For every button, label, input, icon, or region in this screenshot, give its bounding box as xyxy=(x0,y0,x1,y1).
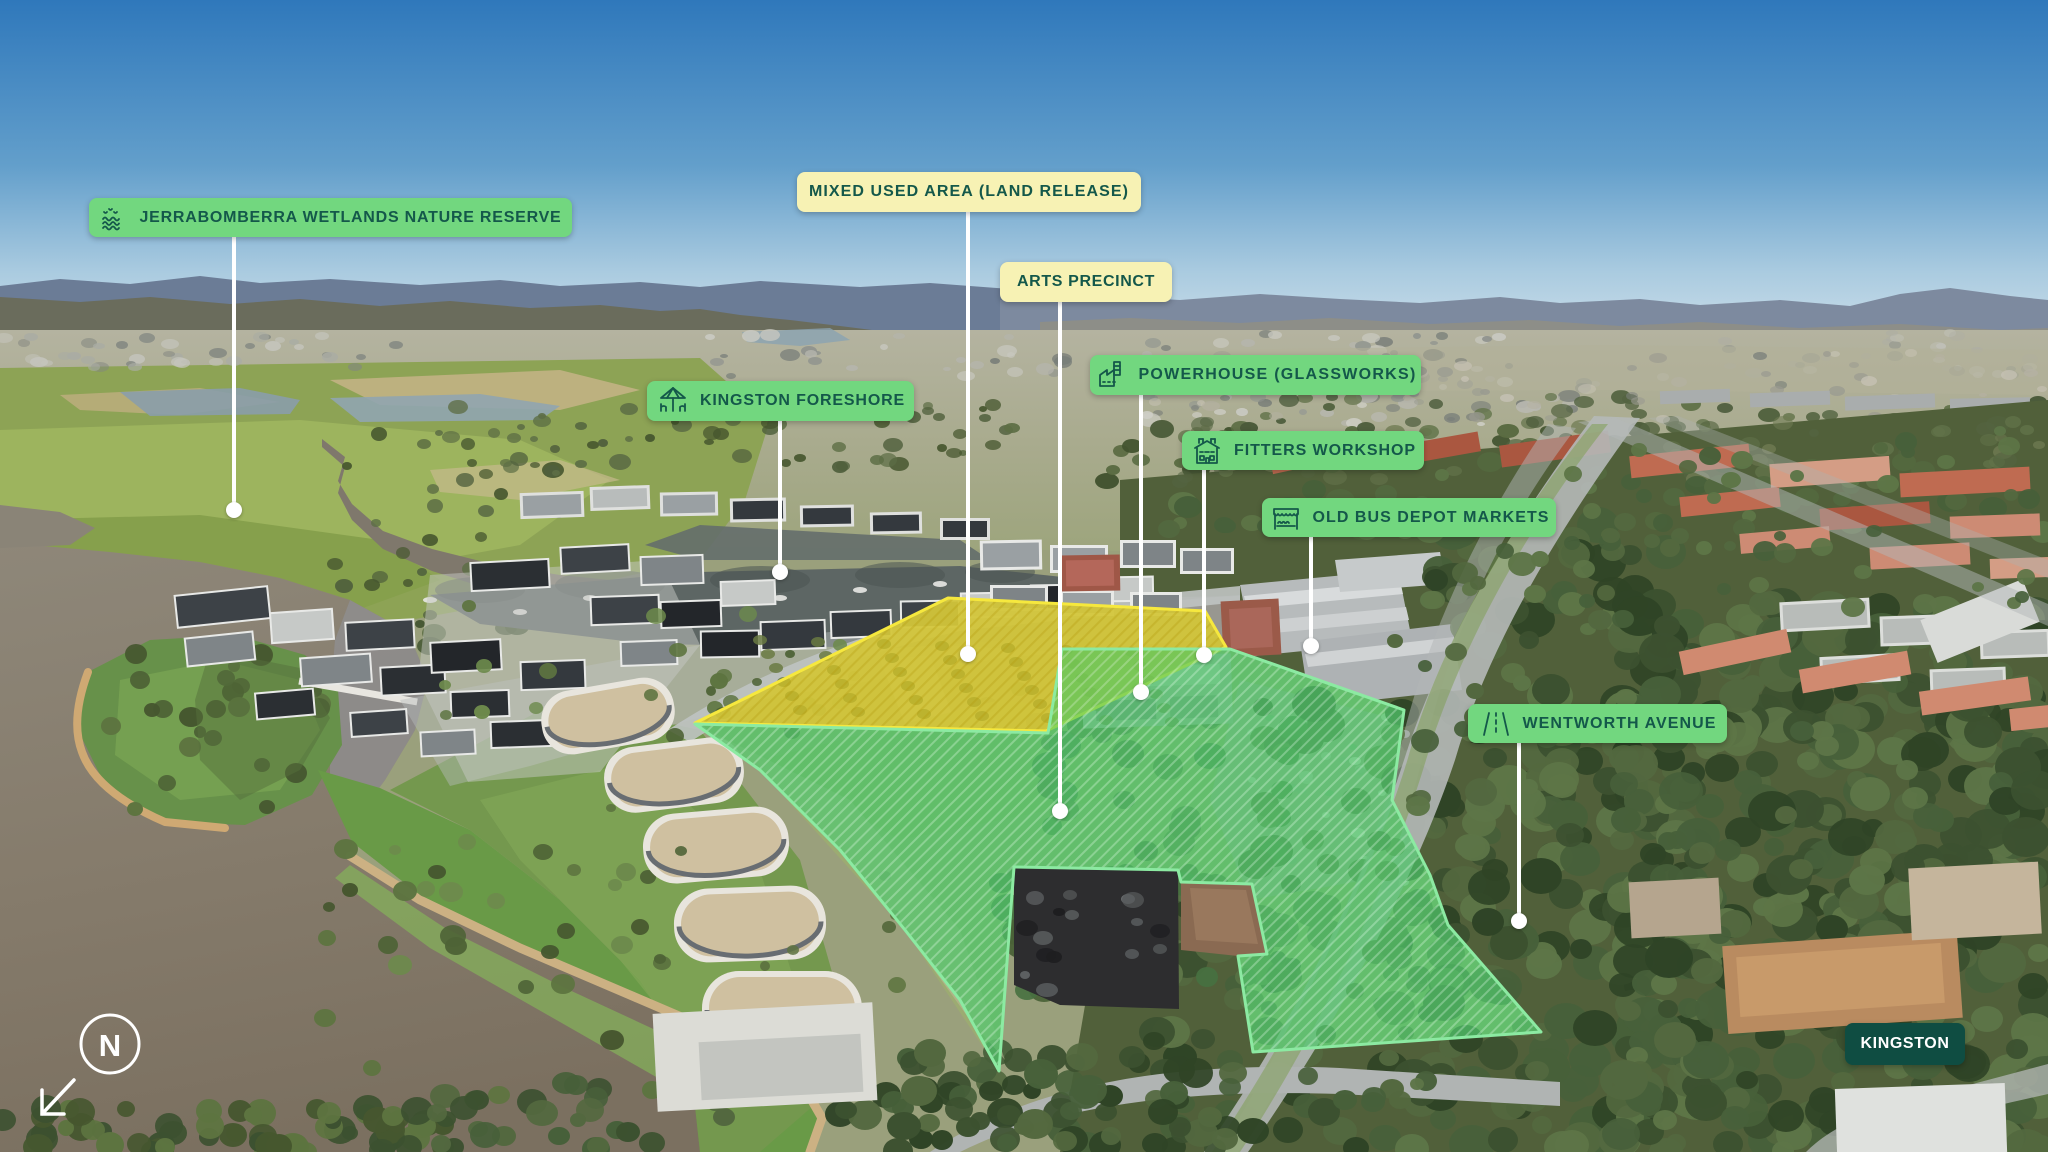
svg-text:N: N xyxy=(99,1028,121,1063)
